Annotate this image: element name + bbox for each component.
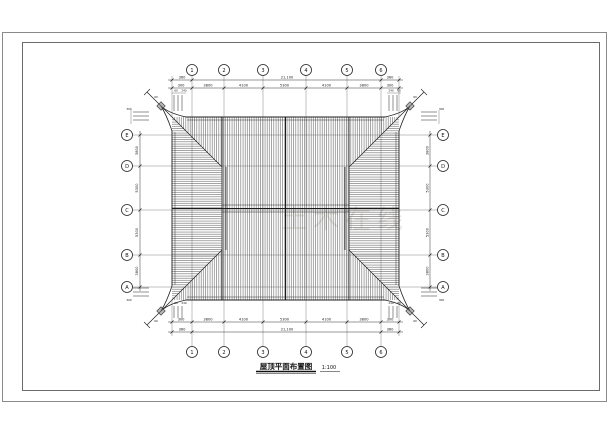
axis-label: 4 [304, 350, 307, 356]
dim-label: 5300 [280, 318, 290, 322]
axis-label: B [125, 253, 129, 259]
drawing-title: 屋顶平面布置图 [260, 361, 313, 371]
micro-dim: 60 [154, 95, 158, 99]
dim-label: 21,100 [281, 76, 294, 80]
dim-label: 4100 [239, 84, 249, 88]
dim-label: 5300 [426, 227, 430, 237]
axis-label: A [125, 285, 129, 291]
axis-label: 2 [222, 350, 225, 356]
dim-label: 3800 [359, 318, 369, 322]
dim-label: 5300 [135, 227, 139, 237]
axis-label: A [441, 285, 445, 291]
dim-label: 300 [178, 84, 186, 88]
cad-sheet: 土木在线 [0, 0, 610, 432]
dim-label: 5300 [135, 183, 139, 193]
dim-label: 5300 [426, 183, 430, 193]
micro-dim: 60 [397, 301, 401, 305]
axis-label: 1 [190, 68, 193, 74]
axis-label: 6 [379, 68, 382, 74]
dim-label: 360 [387, 76, 395, 80]
dim-label: 4100 [239, 318, 249, 322]
micro-dim: 60 [154, 319, 158, 323]
micro-dim: 300 [126, 107, 132, 111]
dim-label: 300 [387, 318, 395, 322]
micro-dim: 300 [439, 107, 445, 111]
axis-label: 5 [345, 68, 348, 74]
grid-bubbles-bottom [187, 347, 387, 358]
micro-dim: 60 [413, 319, 417, 323]
drawing-scale: 1:100 [322, 365, 336, 371]
micro-dim: 300 [439, 298, 445, 302]
dim-label: 5300 [280, 84, 290, 88]
dim-label: 4100 [322, 84, 332, 88]
dim-label: 360 [179, 328, 187, 332]
dim-label: 3800 [426, 145, 430, 155]
dim-label: 3800 [135, 145, 139, 155]
axis-label: E [125, 133, 128, 139]
micro-dim: 60 [174, 89, 178, 93]
dim-label: 21,100 [281, 328, 294, 332]
axis-label: B [441, 253, 445, 259]
axis-label: D [125, 164, 129, 170]
dim-label: 3800 [426, 266, 430, 276]
dim-label: 3800 [135, 266, 139, 276]
axis-label: D [441, 164, 445, 170]
micro-dim: 300 [126, 298, 132, 302]
axis-label: 2 [222, 68, 225, 74]
micro-dim: 240 [388, 301, 394, 305]
dim-label: 4100 [322, 318, 332, 322]
micro-dim: 60 [397, 89, 401, 93]
axis-label: 3 [261, 350, 264, 356]
dim-label: 3800 [203, 84, 213, 88]
axis-label: E [441, 133, 444, 139]
dimension-labels-bottom: 300 3800 4100 5300 4100 3800 300 360 21,… [178, 318, 395, 332]
roof-plan-drawing: 土木在线 [0, 0, 610, 432]
dim-label: 360 [179, 76, 187, 80]
axis-label: 1 [190, 350, 193, 356]
dim-label: 3800 [359, 84, 369, 88]
micro-dim: 240 [388, 89, 394, 93]
dim-label: 300 [178, 318, 186, 322]
micro-dim: 240 [181, 89, 187, 93]
dim-label: 3800 [203, 318, 213, 322]
dimension-labels-top: 360 21,100 360 300 3800 4100 5300 4100 3… [178, 76, 395, 88]
axis-label: 3 [261, 68, 264, 74]
axis-label: C [125, 208, 129, 214]
title-block: 屋顶平面布置图 1:100 [256, 361, 340, 374]
micro-dim: 240 [181, 301, 187, 305]
micro-dim: 60 [174, 301, 178, 305]
axis-label: 5 [345, 350, 348, 356]
axis-label: C [441, 208, 445, 214]
grid-bubbles-top [187, 65, 387, 76]
axis-label: 4 [304, 68, 307, 74]
micro-dim: 60 [413, 95, 417, 99]
dim-label: 360 [387, 328, 395, 332]
axis-label: 6 [379, 350, 382, 356]
dim-label: 300 [387, 84, 395, 88]
